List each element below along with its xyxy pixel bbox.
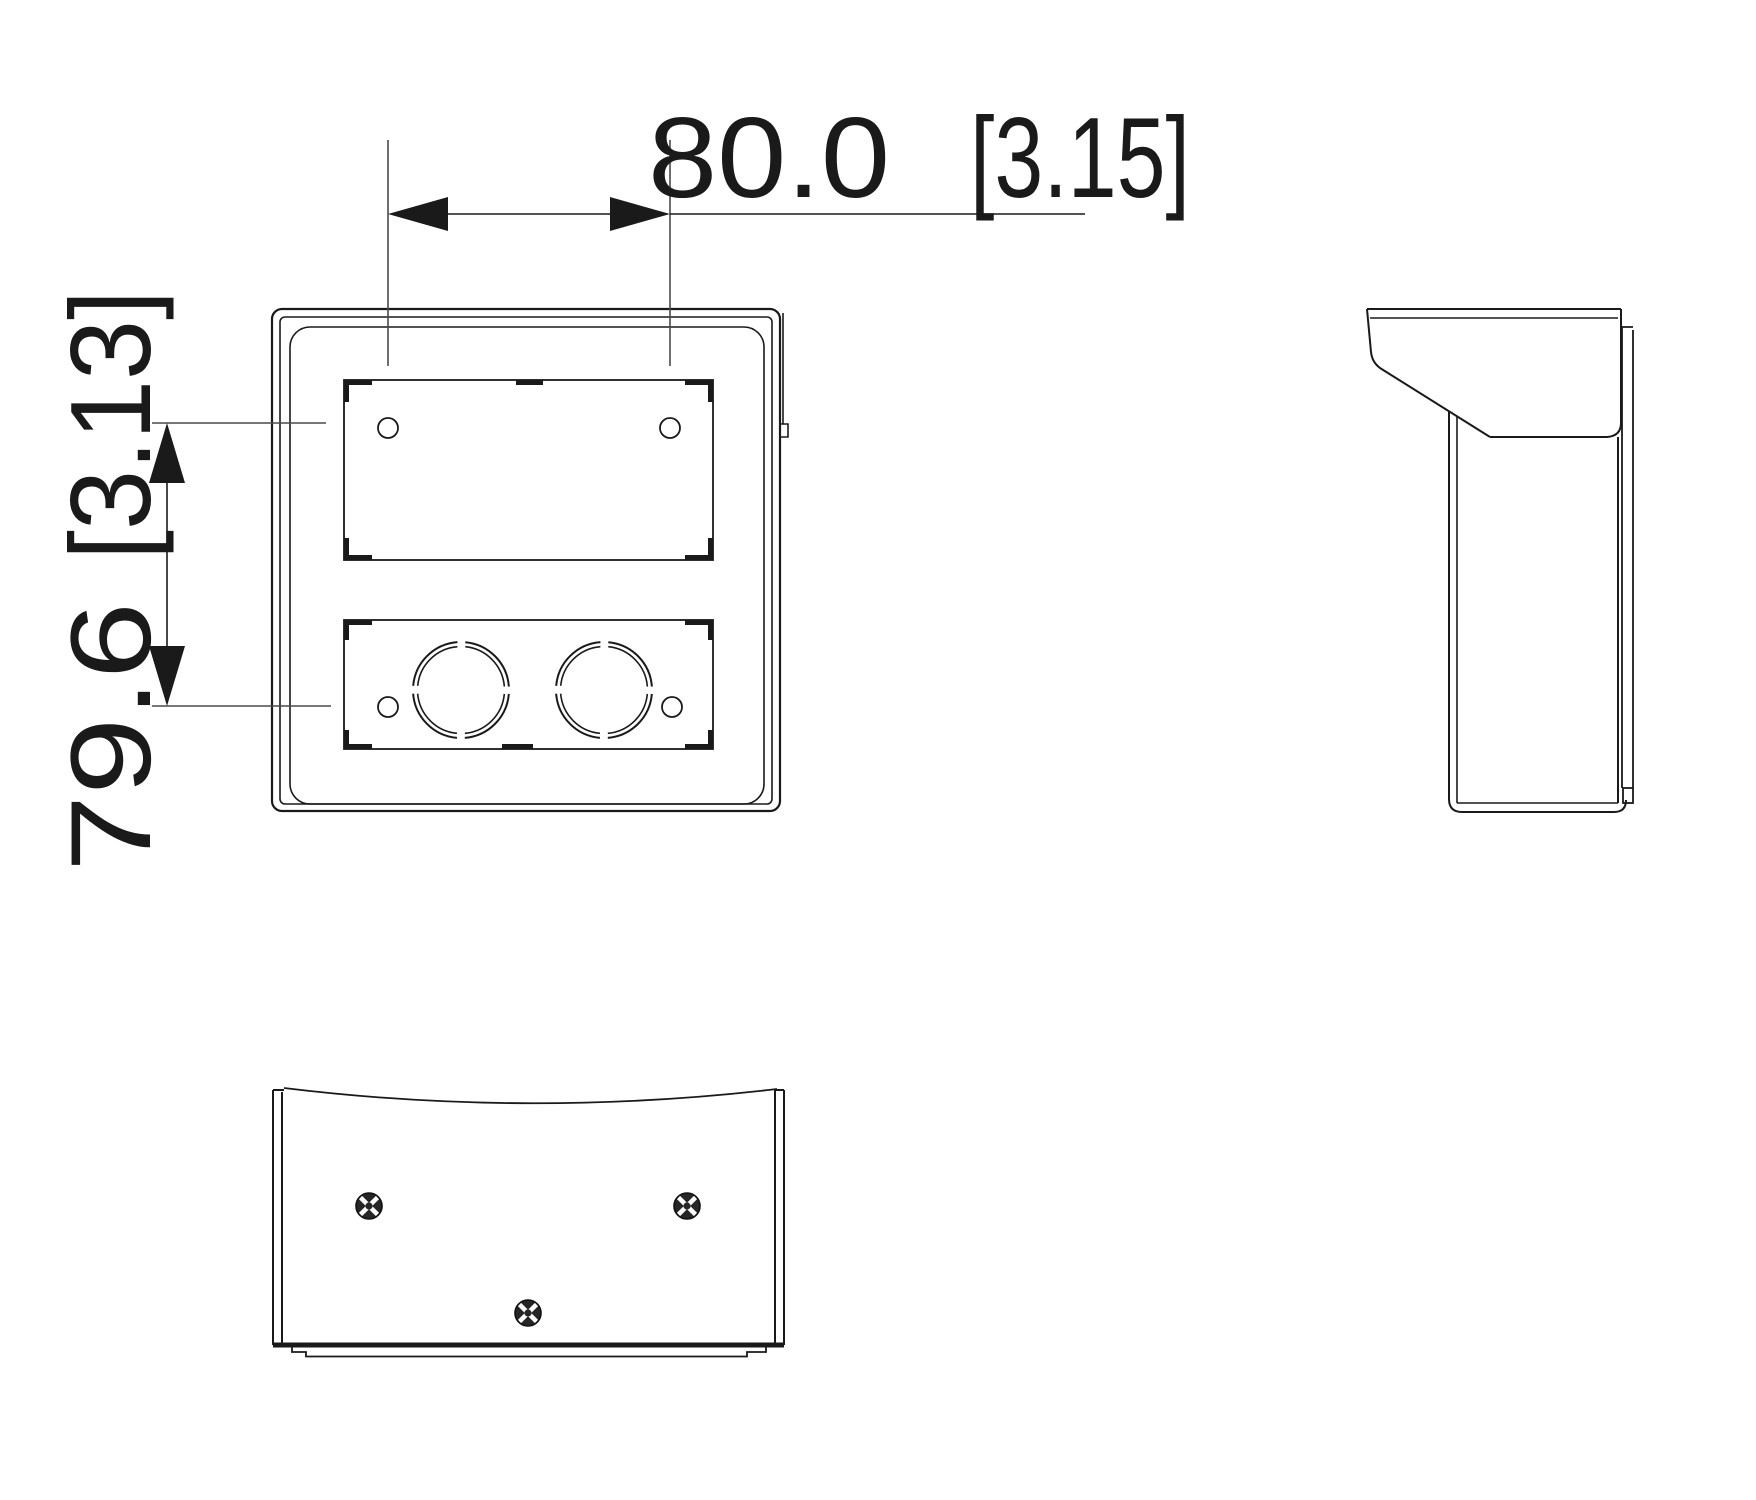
lens-knockout — [556, 642, 652, 738]
corner-bracket — [685, 383, 711, 403]
side-view — [1367, 309, 1633, 812]
dimension-label-mm: 80.0 — [648, 95, 890, 222]
bottom-cutout-panel — [344, 620, 713, 749]
screw-hole — [378, 697, 398, 717]
phillips-screw-icon — [674, 1193, 700, 1219]
corner-bracket — [347, 623, 373, 641]
phillips-screw-icon — [515, 1300, 541, 1326]
bottom-right-edge — [775, 1090, 784, 1345]
technical-drawing-canvas: 80.0 [3.15] 79.6 [3.13] — [0, 0, 1756, 1500]
dimension-arrow-left — [388, 197, 448, 231]
front-face-plate — [290, 327, 764, 804]
vertical-dimension: 79.6 [3.13] — [48, 290, 331, 872]
corner-bracket — [347, 730, 373, 747]
side-back-plate — [1622, 327, 1633, 803]
top-cutout-panel — [344, 380, 713, 560]
horizontal-dimension: 80.0 [3.15] — [388, 95, 1190, 366]
corner-bracket — [685, 538, 711, 558]
bottom-base-plate — [292, 1347, 766, 1357]
dimension-label-inches: [3.13] — [48, 290, 175, 560]
side-visor — [1367, 309, 1621, 437]
lens-knockout — [413, 642, 509, 738]
dimension-label-inches: [3.15] — [970, 95, 1190, 222]
screw-hole — [662, 697, 682, 717]
corner-bracket — [685, 623, 711, 641]
screw-hole — [660, 418, 680, 438]
screw-hole — [378, 418, 398, 438]
bottom-left-edge — [273, 1090, 284, 1345]
bottom-top-curve — [284, 1088, 777, 1103]
front-view — [272, 309, 788, 811]
dimension-label-mm: 79.6 — [48, 602, 175, 872]
phillips-screw-icon — [356, 1193, 382, 1219]
side-body — [1449, 411, 1626, 812]
corner-bracket — [347, 538, 373, 558]
bottom-view — [273, 1088, 784, 1357]
corner-bracket — [685, 730, 711, 747]
corner-bracket — [347, 383, 373, 403]
side-mount-tab — [780, 313, 788, 437]
